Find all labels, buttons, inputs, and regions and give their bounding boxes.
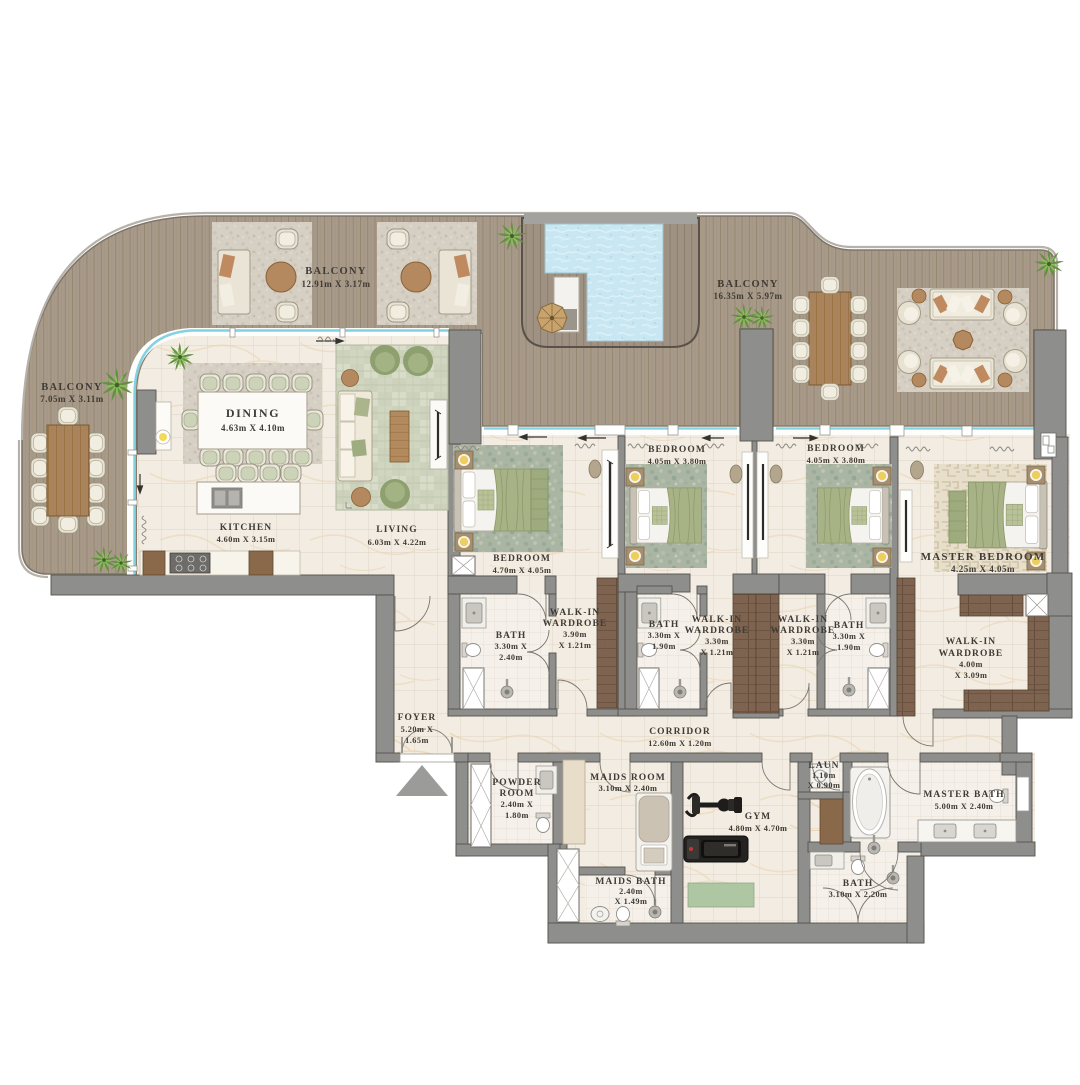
- svg-text:GYM: GYM: [745, 812, 772, 822]
- svg-text:LIVING: LIVING: [376, 525, 417, 535]
- svg-text:BATH: BATH: [834, 621, 865, 631]
- svg-text:1.90m: 1.90m: [652, 642, 676, 651]
- svg-text:FOYER: FOYER: [398, 713, 437, 723]
- svg-text:WALK-IN: WALK-IN: [778, 615, 828, 625]
- svg-text:3.30m X: 3.30m X: [648, 631, 681, 640]
- svg-text:POWDER: POWDER: [492, 778, 541, 788]
- svg-text:X 1.21m: X 1.21m: [559, 641, 592, 650]
- svg-text:3.10m X 2.20m: 3.10m X 2.20m: [829, 890, 888, 899]
- svg-text:MASTER BEDROOM: MASTER BEDROOM: [921, 551, 1046, 563]
- svg-text:BATH: BATH: [496, 631, 527, 641]
- svg-text:3.90m: 3.90m: [563, 630, 587, 639]
- svg-text:X 1.21m: X 1.21m: [787, 648, 820, 657]
- svg-text:BEDROOM: BEDROOM: [807, 444, 865, 454]
- svg-text:3.30m: 3.30m: [705, 637, 729, 646]
- svg-text:7.05m X 3.11m: 7.05m X 3.11m: [40, 394, 104, 404]
- svg-text:WARDROBE: WARDROBE: [771, 626, 836, 636]
- svg-text:3.10m X 2.40m: 3.10m X 2.40m: [599, 784, 658, 793]
- svg-text:LAUN: LAUN: [808, 761, 839, 771]
- svg-text:WALK-IN: WALK-IN: [550, 608, 600, 618]
- svg-text:CORRIDOR: CORRIDOR: [649, 727, 711, 737]
- svg-text:WARDROBE: WARDROBE: [685, 626, 750, 636]
- svg-text:WALK-IN: WALK-IN: [692, 615, 742, 625]
- svg-text:2.40m: 2.40m: [499, 653, 523, 662]
- svg-text:4.70m X 4.05m: 4.70m X 4.05m: [493, 566, 552, 575]
- svg-text:BALCONY: BALCONY: [717, 279, 779, 290]
- svg-text:3.30m X: 3.30m X: [495, 642, 528, 651]
- svg-text:4.00m: 4.00m: [959, 660, 983, 669]
- svg-text:16.35m X 5.97m: 16.35m X 5.97m: [714, 291, 783, 301]
- svg-text:4.60m X 3.15m: 4.60m X 3.15m: [217, 535, 276, 544]
- svg-text:3.30m: 3.30m: [791, 637, 815, 646]
- svg-text:X 1.21m: X 1.21m: [701, 648, 734, 657]
- svg-text:5.20m X: 5.20m X: [401, 725, 434, 734]
- svg-text:3.30m X: 3.30m X: [833, 632, 866, 641]
- svg-text:BALCONY: BALCONY: [41, 382, 103, 393]
- svg-text:X 3.09m: X 3.09m: [955, 671, 988, 680]
- svg-text:BATH: BATH: [843, 879, 874, 889]
- svg-text:KITCHEN: KITCHEN: [220, 523, 273, 533]
- svg-text:1.10m: 1.10m: [812, 771, 836, 780]
- svg-text:4.05m X 3.80m: 4.05m X 3.80m: [807, 456, 866, 465]
- svg-text:BEDROOM: BEDROOM: [493, 554, 551, 564]
- svg-text:4.80m X 4.70m: 4.80m X 4.70m: [729, 824, 788, 833]
- svg-text:WARDROBE: WARDROBE: [543, 619, 608, 629]
- svg-text:DINING: DINING: [226, 406, 280, 420]
- svg-text:MASTER BATH: MASTER BATH: [923, 790, 1004, 800]
- svg-text:BEDROOM: BEDROOM: [648, 445, 706, 455]
- svg-text:4.63m X 4.10m: 4.63m X 4.10m: [221, 423, 285, 433]
- svg-text:12.91m X 3.17m: 12.91m X 3.17m: [302, 279, 371, 289]
- svg-text:MAIDS BATH: MAIDS BATH: [595, 877, 666, 887]
- svg-text:4.05m X 3.80m: 4.05m X 3.80m: [648, 457, 707, 466]
- svg-text:WARDROBE: WARDROBE: [939, 649, 1004, 659]
- svg-text:X 1.49m: X 1.49m: [615, 897, 648, 906]
- svg-text:6.03m X 4.22m: 6.03m X 4.22m: [368, 538, 427, 547]
- svg-text:4.25m X 4.05m: 4.25m X 4.05m: [951, 564, 1015, 574]
- svg-text:MAIDS ROOM: MAIDS ROOM: [590, 773, 666, 783]
- svg-text:1.80m: 1.80m: [505, 811, 529, 820]
- svg-text:BATH: BATH: [649, 620, 680, 630]
- svg-text:BALCONY: BALCONY: [305, 266, 367, 277]
- svg-text:12.60m X 1.20m: 12.60m X 1.20m: [648, 739, 711, 748]
- svg-text:2.40m X: 2.40m X: [501, 800, 534, 809]
- svg-text:1.65m: 1.65m: [405, 736, 429, 745]
- svg-text:WALK-IN: WALK-IN: [946, 637, 996, 647]
- svg-text:2.40m: 2.40m: [619, 887, 643, 896]
- svg-text:1.90m: 1.90m: [837, 643, 861, 652]
- svg-text:ROOM: ROOM: [499, 789, 534, 799]
- svg-text:5.00m X 2.40m: 5.00m X 2.40m: [935, 802, 994, 811]
- svg-text:X 0.90m: X 0.90m: [808, 781, 841, 790]
